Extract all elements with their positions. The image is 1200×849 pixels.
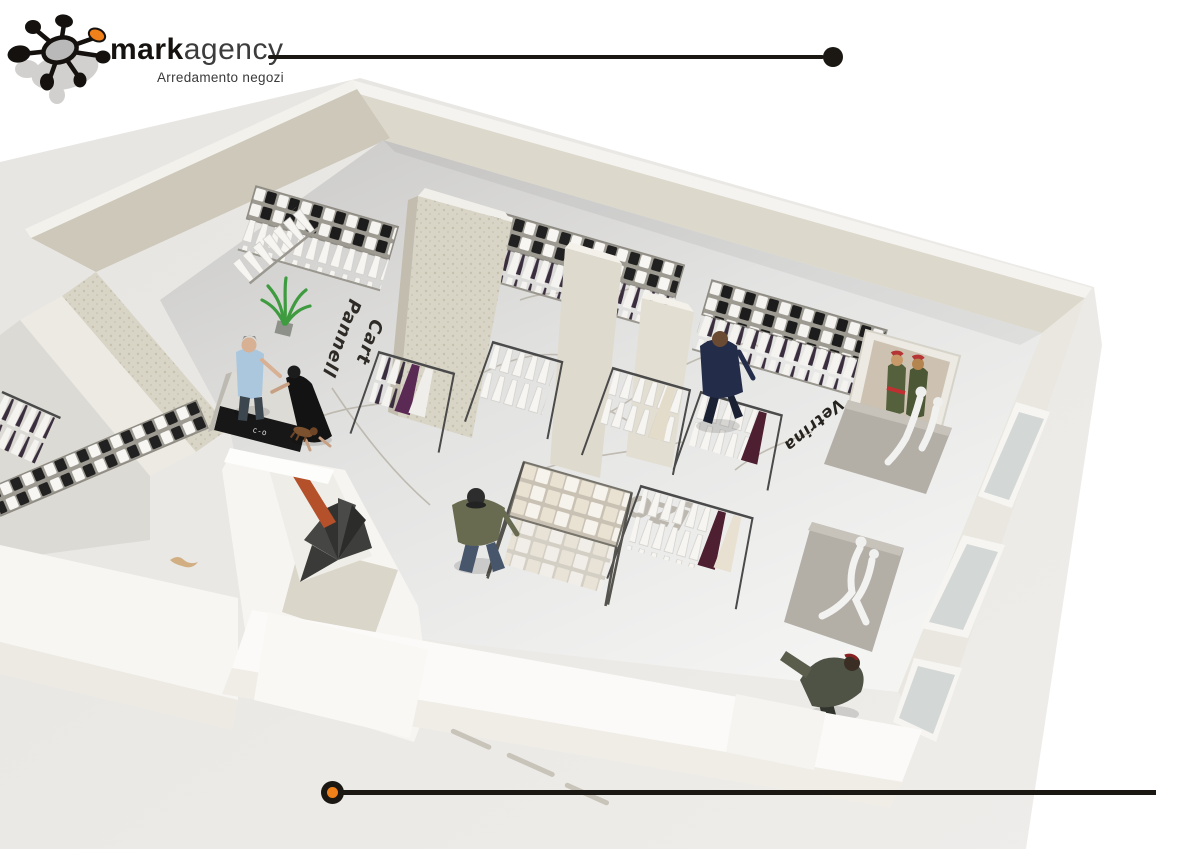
bottom-rule-line <box>340 790 1156 795</box>
brand-name: markagency <box>110 33 283 67</box>
bottom-rule-dot <box>321 781 344 804</box>
bottom-rule-dot-accent <box>327 787 338 798</box>
page: Pannell Cart Vetrina gozi Vet <box>0 0 1200 849</box>
top-rule-dot <box>823 47 843 67</box>
top-rule-line <box>268 55 824 59</box>
markagency-logo-icon <box>6 8 118 108</box>
header: markagency Arredamento negozi <box>0 0 1200 110</box>
brand-name-bold: mark <box>110 33 184 66</box>
store-3d-render: Pannell Cart Vetrina gozi Vet <box>0 0 1200 849</box>
brand-name-light: agency <box>184 33 284 66</box>
brand-tagline: Arredamento negozi <box>157 70 284 85</box>
